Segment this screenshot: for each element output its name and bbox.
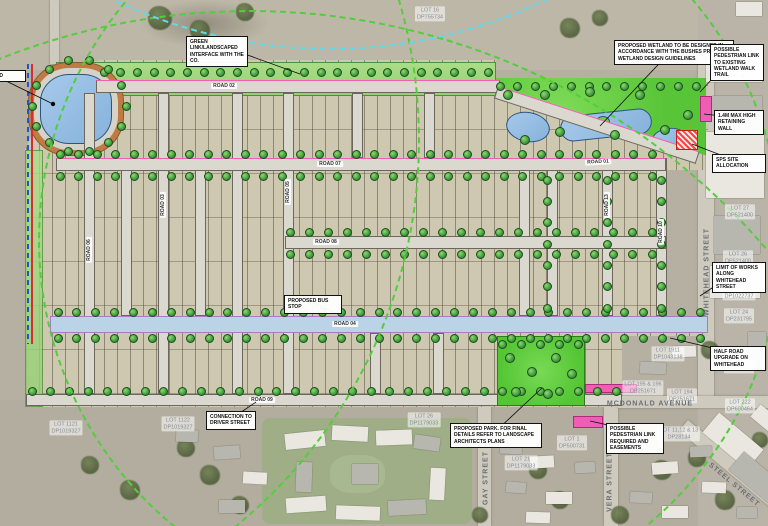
street-tree [500,150,509,159]
house-roof [284,430,325,450]
street-tree [348,387,357,396]
house-roof [336,505,380,521]
street-tree [590,228,599,237]
street-tree [552,228,561,237]
house-roof [690,446,712,458]
road-name-label: ROAD 04 [332,321,358,327]
street-tree [683,110,693,120]
street-tree [657,176,666,185]
street-tree [324,228,333,237]
street-tree [609,228,618,237]
street-tree [367,387,376,396]
house-roof [332,425,369,442]
house-roof [652,461,679,475]
street-tree [505,353,515,363]
bush-icon [200,465,220,485]
street-tree [352,150,361,159]
street-name-label: WHITEHEAD STREET [704,228,711,316]
street-tree [527,367,537,377]
street-tree [166,68,175,77]
sps-site-hatch [676,130,698,150]
road-name-label: ROAD 02 [211,83,237,89]
street-tree [514,250,523,259]
street-tree [603,218,612,227]
street-tree [611,172,620,181]
street-tree [533,228,542,237]
callout-greenway: GREEN LINK/LANDSCAPED INTERFACE WITH THE… [186,36,248,67]
house-roof [702,482,726,494]
street-tree [463,172,472,181]
street-tree [628,228,637,237]
street-tree [503,90,513,100]
house-roof [630,491,653,503]
house-roof [736,2,762,16]
house-roof [714,216,760,254]
street-tree [167,334,176,343]
street-tree [674,82,683,91]
house-roof [388,499,427,516]
street-tree [555,340,564,349]
street-tree [91,308,100,317]
house-roof [376,429,413,445]
vera-pedestrian-block [573,416,603,428]
street-tree [167,308,176,317]
street-tree [677,308,686,317]
street-tree [261,334,270,343]
street-tree [116,68,125,77]
street-tree [536,340,545,349]
street-tree [352,172,361,181]
road-name-label: ROAD 03 [160,192,166,218]
street-tree [333,172,342,181]
street-tree [362,250,371,259]
street-tree [648,172,657,181]
street-tree [300,68,309,77]
street-tree [438,228,447,237]
street-tree [261,308,270,317]
street-tree [620,82,629,91]
lot-label: LOT 11,12 & 13DP28134 [658,426,700,441]
street-tree [648,228,657,237]
street-tree [186,308,195,317]
street-tree [507,334,516,343]
street-tree [375,334,384,343]
street-tree [417,68,426,77]
street-tree [582,308,591,317]
street-tree [233,68,242,77]
street-tree [129,334,138,343]
street-tree [329,387,338,396]
street-tree [543,240,552,249]
street-tree [611,150,620,159]
house-roof [176,430,198,443]
street-tree [242,334,251,343]
street-tree [603,240,612,249]
street-tree [310,387,319,396]
street-tree [480,387,489,396]
street-tree [426,150,435,159]
street-tree [74,150,83,159]
street-tree [419,228,428,237]
street-tree [520,135,530,145]
street-tree [117,81,126,90]
road-name-label: ROAD 13 [604,192,610,218]
road-name-label: ROAD 06 [86,237,92,263]
street-tree [299,334,308,343]
street-tree [317,68,326,77]
street-tree [500,172,509,181]
street-tree [574,340,583,349]
street-tree [603,261,612,270]
street-tree [93,172,102,181]
street-tree [692,82,701,91]
house-roof [640,362,666,375]
street-tree [648,150,657,159]
street-tree [629,150,638,159]
street-tree [540,90,550,100]
street-tree [216,68,225,77]
street-tree [603,176,612,185]
street-tree [592,150,601,159]
street-tree [555,172,564,181]
street-tree [567,369,577,379]
street-tree [610,130,620,140]
house-roof [526,512,550,524]
street-tree [242,308,251,317]
lot-label: LOT 16DP755734 [415,6,445,21]
street-tree [216,387,225,396]
street-tree [514,228,523,237]
house-roof [352,464,378,484]
house-roof [286,496,327,514]
street-tree [639,334,648,343]
street-tree [423,387,432,396]
bush-icon [148,6,172,30]
house-roof [662,506,688,518]
street-tree [286,250,295,259]
street-tree [517,340,526,349]
street-tree [407,172,416,181]
house-roof [219,500,245,513]
street-tree [111,150,120,159]
lot-label: LOT 26DP1179033 [408,412,441,427]
street-tree [381,250,390,259]
street-tree [563,334,572,343]
street-tree [467,68,476,77]
street-tree [657,304,666,313]
street-tree [84,387,93,396]
street-tree [129,308,138,317]
street-tree [582,334,591,343]
street-tree [318,334,327,343]
street-tree [122,387,131,396]
street-tree [72,334,81,343]
street-tree [389,150,398,159]
street-tree [291,387,300,396]
street-tree [660,125,670,135]
street-tree [657,261,666,270]
callout-ped-link-easement: POSSIBLE PEDESTRIAN LINK REQUIRED AND EA… [606,423,664,454]
street-tree [305,228,314,237]
street-tree [28,102,37,111]
street-tree [350,68,359,77]
house-roof [295,462,312,493]
street-tree [296,172,305,181]
street-tree [476,228,485,237]
masterplan-canvas: LOT 16DP755734LOT 27DP521400LOT 26DP5214… [0,0,768,526]
bush-icon [560,18,580,38]
street-tree [574,387,583,396]
street-tree [393,334,402,343]
street-tree [150,68,159,77]
street-tree [442,387,451,396]
bush-icon [236,3,254,21]
street-tree [481,172,490,181]
street-tree [272,387,281,396]
street-tree [567,82,576,91]
callout-bus-stop: PROPOSED BUS STOP [284,295,342,314]
callout-half-road: HALF ROAD UPGRADE ON WHITEHEAD [710,346,766,371]
lot-label: LOT 27DP521400 [725,204,755,219]
street-tree [609,250,618,259]
road-name-label: ROAD 10 [658,219,664,245]
street-tree [104,65,113,74]
street-tree [315,172,324,181]
street-tree [104,138,113,147]
street-tree [65,387,74,396]
street-tree [370,150,379,159]
street-name-label: VERA STREET [607,452,614,512]
street-tree [241,172,250,181]
street-tree [28,387,37,396]
callout-ped-link-trail: POSSIBLE PEDESTRIAN LINK TO EXISTING WET… [710,44,764,81]
road-name-label: ROAD 05 [285,179,291,205]
street-tree [551,353,561,363]
street-tree [433,68,442,77]
street-tree [64,147,73,156]
street-tree [185,172,194,181]
street-tree [407,150,416,159]
street-tree [571,250,580,259]
street-tree [343,250,352,259]
house-roof [243,471,268,484]
street-tree [305,250,314,259]
street-tree [400,68,409,77]
street-tree [283,68,292,77]
street-tree [389,172,398,181]
street-tree [677,334,686,343]
street-tree [431,308,440,317]
street-tree [648,250,657,259]
street-tree [590,250,599,259]
street-name-label: MCDONALD AVENUE [607,401,693,408]
street-tree [178,387,187,396]
street-tree [343,228,352,237]
road-name-label: ROAD 09 [249,397,275,403]
street-tree [72,308,81,317]
road-name-label: ROAD 08 [313,239,339,245]
lot-label: LOT 1121DP1019327 [49,420,82,435]
street-tree [54,308,63,317]
house-roof [413,434,441,451]
street-tree [266,68,275,77]
street-tree [498,340,507,349]
callout-connection: CONNECTION TO DRIVER STREET [206,411,256,430]
street-tree [444,150,453,159]
street-tree [555,150,564,159]
street-tree [111,172,120,181]
street-tree [657,282,666,291]
street-tree [250,68,259,77]
street-tree [222,150,231,159]
pedestrian-link-marker [700,96,712,122]
bush-icon [472,507,488,523]
street-tree [555,127,565,137]
street-tree [438,250,447,259]
street-tree [241,150,250,159]
callout-retaining-wall: 1.4M MAX HIGH RETAINING WALL [714,110,764,135]
street-tree [141,387,150,396]
street-tree [628,250,637,259]
street-tree [657,197,666,206]
callout-sps: SPS SITE ALLOCATION [712,154,766,173]
street-tree [574,150,583,159]
street-tree [400,250,409,259]
street-tree [543,176,552,185]
bush-icon [611,506,629,524]
street-tree [205,334,214,343]
street-tree [496,82,505,91]
street-tree [469,308,478,317]
street-tree [46,387,55,396]
street-tree [412,334,421,343]
street-tree [450,68,459,77]
lot-label: LOT 1911DP1043138 [651,346,684,361]
generated-layer: LOT 16DP755734LOT 27DP521400LOT 26DP5214… [0,0,768,526]
callout-limit-works: LIMIT OF WORKS ALONG WHITEHEAD STREET [712,262,766,293]
lot-label: LOT 21DP1179033 [505,455,538,470]
street-tree [495,228,504,237]
street-tree [469,334,478,343]
street-tree [461,387,470,396]
street-tree [603,282,612,291]
street-tree [457,250,466,259]
street-tree [555,387,564,396]
street-tree [543,261,552,270]
street-tree [197,387,206,396]
street-tree [200,68,209,77]
street-tree [45,138,54,147]
callout-park: PROPOSED PARK. FOR FINAL DETAILS REFER T… [450,423,542,448]
street-tree [122,102,131,111]
street-tree [356,308,365,317]
house-roof [429,468,446,501]
street-tree [32,81,41,90]
house-roof [575,462,595,474]
street-tree [385,387,394,396]
street-tree [511,387,521,397]
street-tree [603,304,612,313]
street-tree [620,334,629,343]
street-tree [223,308,232,317]
street-tree [367,68,376,77]
street-tree [656,82,665,91]
street-tree [32,122,41,131]
street-tree [383,68,392,77]
street-tree [110,334,119,343]
street-tree [337,334,346,343]
street-tree [543,218,552,227]
street-tree [444,172,453,181]
street-tree [658,334,667,343]
bush-icon [81,456,99,474]
street-tree [571,228,580,237]
street-tree [259,150,268,159]
street-tree [204,172,213,181]
street-tree [280,334,289,343]
street-tree [167,150,176,159]
street-tree [393,308,402,317]
street-tree [64,56,73,65]
street-tree [315,150,324,159]
street-tree [696,334,705,343]
street-tree [549,82,558,91]
lot-label: LOT 24DP231795 [724,308,754,323]
street-tree [518,172,527,181]
street-tree [488,334,497,343]
callout-wetland-label: WETLAND [0,70,26,82]
street-tree [593,387,602,396]
street-tree [404,387,413,396]
street-tree [259,172,268,181]
street-tree [431,334,440,343]
street-tree [254,387,263,396]
house-roof [737,507,757,518]
street-tree [148,172,157,181]
street-tree [286,228,295,237]
bush-icon [592,10,608,26]
house-roof [506,481,527,493]
street-tree [412,308,421,317]
street-tree [148,150,157,159]
street-tree [370,172,379,181]
street-tree [537,150,546,159]
street-tree [574,172,583,181]
lot-label: LOT 222DP600464 [725,398,755,413]
street-tree [204,150,213,159]
street-tree [356,334,365,343]
street-tree [620,308,629,317]
street-tree [333,68,342,77]
street-tree [222,172,231,181]
road-name-label: ROAD 01 [585,158,611,165]
street-tree [362,228,371,237]
street-tree [148,308,157,317]
street-tree [635,90,645,100]
street-tree [400,228,409,237]
street-tree [133,68,142,77]
street-name-label: GAY STREET [483,451,490,505]
street-tree [130,172,139,181]
street-tree [85,56,94,65]
street-tree [563,308,572,317]
street-tree [54,334,63,343]
street-tree [498,387,507,396]
street-tree [103,387,112,396]
lot-label: LOT 1122DP1019327 [161,416,194,431]
street-tree [518,150,527,159]
street-tree [543,389,553,399]
